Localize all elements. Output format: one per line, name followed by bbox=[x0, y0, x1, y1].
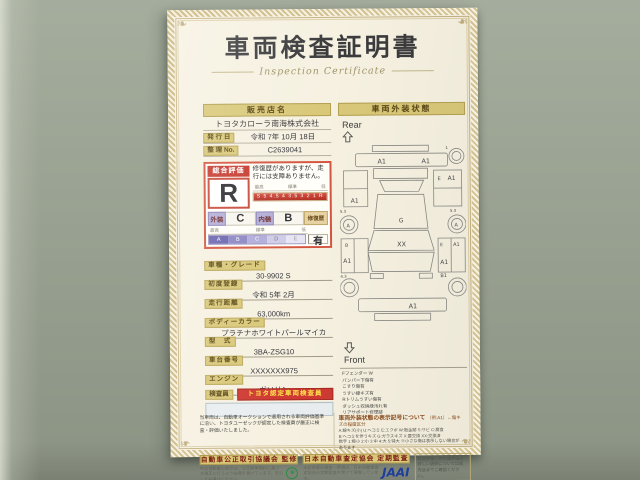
overall-evaluation-header: 総合評価 bbox=[207, 166, 249, 177]
right-column: 車両外装状態 Rear bbox=[338, 102, 467, 417]
fair-trade-note: 中古自動車の表示は、公正競争規約に基づき適正に行うよう指導を受けています。安心し… bbox=[200, 465, 284, 480]
interior-label: 内装 bbox=[256, 211, 274, 225]
grade-scale-marks: S 5 4.5 4 3.5 3 2 1 R bbox=[257, 193, 324, 200]
mark-rear-bumper-right: A1 bbox=[421, 157, 430, 165]
symbols-explanation: 車両外装状態の表示記号について （例:A1）←傷キズの程度区分 A:線キズ(小)… bbox=[333, 412, 461, 451]
mark-rear-bumper-left: A1 bbox=[377, 158, 386, 166]
field-label: 車台番号 bbox=[205, 356, 243, 366]
car-condition-diagram: A1 A1 1 A1 E A1 A A B A1 E A1 A1 G XX B1… bbox=[339, 144, 467, 341]
corner-ornament-icon: ❧ bbox=[180, 436, 191, 449]
toyota-certified-inspector-badge: トヨタ認定車両検査員 bbox=[237, 388, 334, 401]
overall-evaluation-box: 総合評価 R 修復歴がありますが、走行には支障ありません。 最高 標準 低 S … bbox=[203, 161, 332, 249]
mark-code-top-right: 5.3 bbox=[449, 208, 456, 213]
certificate-title: 車両検査証明書 bbox=[174, 27, 470, 65]
scale-label-mid: 標準 bbox=[288, 184, 297, 190]
side-note-box: 総合評価、内外装評価の詳しい説明については販売店までご確認ください。 bbox=[414, 453, 470, 480]
mark-wheel-rear-right: A bbox=[454, 222, 458, 228]
issue-date-label: 発 行 日 bbox=[203, 132, 234, 142]
scale-label-low: 低 bbox=[321, 184, 326, 190]
sub-scale-label-low: 低 bbox=[301, 227, 306, 233]
field-label: ボディーカラー bbox=[205, 317, 265, 327]
jaai-logo: JAAI bbox=[382, 465, 410, 479]
scale-seg-a: A bbox=[209, 236, 228, 244]
ref-number-label: 整 理 No. bbox=[203, 145, 238, 155]
rear-label: Rear bbox=[342, 120, 362, 130]
mark-front-bumper: A1 bbox=[408, 302, 417, 310]
jaai-banner-block: 日本自動車査定協会 定期監査 本証明書の検査・評価は、日本自動車査定協会の定期監… bbox=[303, 453, 409, 480]
field-label: エンジン bbox=[205, 375, 243, 385]
mark-code-top-left: 5.3 bbox=[339, 209, 346, 214]
up-arrow-icon bbox=[342, 131, 353, 143]
scale-seg-d: D bbox=[267, 235, 286, 243]
mark-right-door-e: E bbox=[440, 242, 443, 248]
symbols-line: 数字 1:極小 2:小 3:中 4:大 5:特大 ※小さな傷は表示しない場合があ… bbox=[339, 438, 462, 450]
certificate-subtitle: Inspection Certificate bbox=[259, 66, 386, 78]
exterior-interior-scale: A B C D E bbox=[208, 234, 306, 245]
repair-history-value: 有 bbox=[308, 234, 328, 244]
evaluation-note: 修復歴がありますが、走行には支障ありません。 bbox=[252, 165, 327, 182]
corner-ornament-icon: ❧ bbox=[461, 434, 472, 447]
mark-right-door: A1 bbox=[440, 259, 448, 266]
sub-scale-label-mid: 標準 bbox=[256, 227, 265, 233]
jaai-note: 本証明書の検査・評価は、日本自動車査定協会の定期監査を受けて実施しています。 bbox=[303, 464, 379, 480]
repair-history-label: 修復歴 bbox=[304, 211, 328, 225]
mark-right-door-top: A1 bbox=[453, 242, 460, 248]
overall-grade-value: R bbox=[208, 178, 250, 209]
field-label: 型 式 bbox=[205, 337, 236, 347]
mark-left-quarter: A1 bbox=[350, 198, 358, 205]
scale-seg-c: C bbox=[247, 235, 266, 243]
interior-grade: B bbox=[274, 211, 304, 225]
mark-right-quarter: A1 bbox=[447, 175, 455, 182]
scale-label-high: 最高 bbox=[255, 184, 264, 190]
flourish-line bbox=[392, 70, 434, 71]
front-label: Front bbox=[344, 355, 365, 365]
vehicle-spec-fields: 車種・グレード 30-9902 S 初度登録 令和 5年 2月 走行距離 63,… bbox=[204, 253, 333, 387]
mark-right-quarter-e: E bbox=[437, 176, 440, 182]
inspector-label: 検査員 bbox=[205, 390, 233, 400]
field-label: 初度登録 bbox=[204, 280, 242, 290]
scale-seg-e: E bbox=[286, 235, 305, 243]
dealer-name: トヨタカローラ南海株式会社 bbox=[203, 116, 331, 131]
auction-standard-note: 当車両は、自動車オークションで適用される車両評価基準に沿い、トヨタユーゼックが認… bbox=[199, 413, 328, 452]
mark-wheel-rear-left: A bbox=[346, 223, 350, 229]
grade-scale-highlight: S 5 4.5 4 3.5 3 2 1 R bbox=[254, 193, 327, 201]
field-label: 車種・グレード bbox=[204, 260, 265, 270]
fair-trade-logo-icon: ❀ bbox=[286, 467, 298, 479]
corner-ornament-icon: ❧ bbox=[176, 18, 187, 31]
down-arrow-icon bbox=[344, 342, 355, 354]
condition-legend: Fフェンダー W バンパー下傷有 こすり傷有 うすい線キズ有 Rトリムうすい傷有… bbox=[340, 367, 467, 417]
mark-code-bottom-left: 4.3 bbox=[340, 274, 347, 279]
fair-trade-banner-block: 自動車公正取引協議会 監修 中古自動車の表示は、公正競争規約に基づき適正に行うよ… bbox=[200, 454, 299, 480]
dealer-header: 販売店名 bbox=[203, 103, 331, 117]
mark-left-door: A1 bbox=[343, 258, 351, 265]
sub-scale-label-high: 最高 bbox=[210, 228, 219, 234]
exterior-condition-header: 車両外装状態 bbox=[338, 102, 465, 116]
exterior-grade: C bbox=[226, 212, 256, 226]
fair-trade-banner: 自動車公正取引協議会 監修 bbox=[200, 454, 299, 465]
mark-windshield: XX bbox=[397, 240, 407, 248]
field-label: 走行距離 bbox=[205, 299, 243, 309]
exterior-label: 外装 bbox=[208, 212, 226, 226]
mark-tail-code: 1 bbox=[445, 145, 448, 150]
scale-seg-b: B bbox=[228, 236, 247, 244]
mark-roof: G bbox=[398, 217, 403, 224]
flourish-line bbox=[211, 72, 253, 73]
field-model-grade: 車種・グレード 30-9902 S bbox=[204, 253, 332, 273]
corner-ornament-icon: ❧ bbox=[457, 16, 468, 29]
issue-date-value: 令和 7年 10月 18日 bbox=[234, 131, 331, 143]
ref-number-value: C2639041 bbox=[238, 145, 331, 155]
mark-front-fender-right: B1 bbox=[440, 273, 447, 279]
inspection-certificate-document: ❧ ❧ ❧ ❧ 車両検査証明書 Inspection Certificate 販… bbox=[167, 8, 481, 457]
left-column: 販売店名 トヨタカローラ南海株式会社 発 行 日 令和 7年 10月 18日 整… bbox=[203, 103, 333, 417]
evaluation-grade-cell: 総合評価 R bbox=[207, 166, 249, 209]
evaluation-detail-cell: 修復歴がありますが、走行には支障ありません。 最高 標準 低 S 5 4.5 4… bbox=[252, 165, 327, 209]
mark-left-door-b: B bbox=[345, 243, 348, 249]
jaai-banner: 日本自動車査定協会 定期監査 bbox=[303, 453, 409, 464]
footer-section: 当車両は、自動車オークションで適用される車両評価基準に沿い、トヨタユーゼックが認… bbox=[199, 412, 462, 480]
grade-scale-bar: S 5 4.5 4 3.5 3 2 1 R bbox=[253, 192, 328, 202]
